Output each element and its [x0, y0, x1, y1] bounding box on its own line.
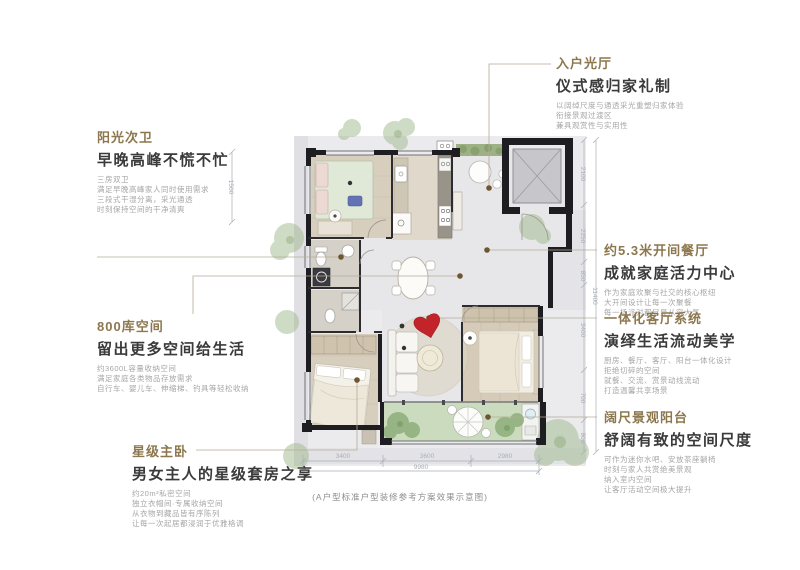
annotation-line: 以阔绰尺度与通透采光重塑归家体验 [556, 101, 684, 111]
annotation-subtitle: 仪式感归家礼制 [556, 75, 684, 96]
annotation-line: 时刻与家人共赏绝美景观 [604, 465, 753, 475]
blue-throw [348, 196, 362, 206]
dim-bottom-total: 9980 [414, 464, 429, 471]
wardrobe [464, 308, 538, 322]
annotation-sun-bathroom: 阳光次卫 早晚高峰不慌不忙 三房双卫 满足早晚高峰家人同时使用需求 三段式干湿分… [97, 127, 229, 215]
dim-bottom-3: 2980 [498, 453, 513, 460]
annotation-line: 纳入室内空间 [604, 475, 753, 485]
annotation-line: 衔接景观过渡区 [556, 111, 684, 121]
annotation-subtitle: 成就家庭活力中心 [604, 262, 736, 283]
annotation-entry-hall: 入户光厅 仪式感归家礼制 以阔绰尺度与通透采光重塑归家体验 衔接景观过渡区 兼具… [556, 53, 684, 131]
annotation-storage: 800库空间 留出更多空间给生活 约3600L容量收纳空间 满足家庭各类物品存放… [97, 316, 249, 394]
annotation-line: 自行车、婴儿车、伸缩梯、钓具等轻松收纳 [97, 384, 249, 394]
basin [342, 245, 354, 257]
dim-bottom-1: 3400 [336, 453, 351, 460]
annotation-line: 让每一次起居都浸润于优雅格调 [132, 519, 314, 529]
floor-dining [360, 238, 548, 310]
annotation-lines: 三房双卫 满足早晚高峰家人同时使用需求 三段式干湿分离，采光通透 时刻保持空间的… [97, 175, 229, 215]
annotation-line: 三段式干湿分离，采光通透 [97, 195, 229, 205]
annotation-master-bedroom: 星级主卧 男女主人的星级套房之享 约20m²私密空间 独立衣帽间·专属收纳空间 … [132, 441, 314, 529]
toilet [316, 252, 326, 266]
dim-right-2: 2250 [579, 229, 586, 244]
annotation-line: 拒绝切碎的空间 [604, 366, 736, 376]
annotation-line: 就餐、交流、赏景动线流动 [604, 376, 736, 386]
annotation-title: 阔尺景观阳台 [604, 407, 753, 426]
washer [313, 268, 330, 286]
annotation-lines: 厨房、餐厅、客厅、阳台一体化设计 拒绝切碎的空间 就餐、交流、赏景动线流动 打造… [604, 356, 736, 396]
annotation-subtitle: 演绎生活流动美学 [604, 330, 736, 351]
annotation-line: 满足早晚高峰家人同时使用需求 [97, 185, 229, 195]
dim-right-1: 2100 [579, 167, 586, 182]
annotation-title: 入户光厅 [556, 53, 684, 72]
annotation-lines: 可作为迷你水吧、安放茶座躺椅 时刻与家人共赏绝美景观 纳入室内空间 让客厅活动空… [604, 455, 753, 495]
dim-right-4: 3400 [579, 323, 586, 338]
annotation-subtitle: 男女主人的星级套房之享 [132, 463, 314, 484]
walk-in-closet [311, 336, 376, 354]
annotation-line: 打造温馨共享场景 [604, 386, 736, 396]
dim-right-total: 11400 [591, 287, 598, 305]
annotation-line: 兼具观赏性与实用性 [556, 121, 684, 131]
annotation-dining: 约5.3米开间餐厅 成就家庭活力中心 作为家庭欢聚与社交的核心枢纽 大开间设计让… [604, 240, 736, 318]
annotation-line: 时刻保持空间的干净清爽 [97, 205, 229, 215]
coffee-table [417, 345, 443, 371]
annotation-lines: 约3600L容量收纳空间 满足家庭各类物品存放需求 自行车、婴儿车、伸缩梯、钓具… [97, 364, 249, 394]
annotation-line: 可作为迷你水吧、安放茶座躺椅 [604, 455, 753, 465]
annotation-line: 大开间设计让每一次聚餐 [604, 298, 736, 308]
desk [318, 221, 352, 235]
annotation-subtitle: 留出更多空间给生活 [97, 338, 249, 359]
plan-caption: (A户型标准户型装修参考方案效果示意图) [0, 491, 800, 503]
dim-bottom-2: 3600 [420, 453, 435, 460]
annotation-title: 800库空间 [97, 316, 249, 335]
annotation-line: 约3600L容量收纳空间 [97, 364, 249, 374]
annotation-title: 阳光次卫 [97, 127, 229, 146]
annotation-line: 从衣物到藏品皆有序陈列 [132, 509, 314, 519]
annotation-title: 一体化客厅系统 [604, 308, 736, 327]
annotation-subtitle: 舒阔有致的空间尺度 [604, 429, 753, 450]
dim-right-3: 850 [579, 271, 586, 282]
annotation-line: 厨房、餐厅、客厅、阳台一体化设计 [604, 356, 736, 366]
island [392, 213, 411, 234]
annotation-line: 满足家庭各类物品存放需求 [97, 374, 249, 384]
annotation-line: 三房双卫 [97, 175, 229, 185]
annotation-balcony: 阔尺景观阳台 舒阔有致的空间尺度 可作为迷你水吧、安放茶座躺椅 时刻与家人共赏绝… [604, 407, 753, 495]
annotation-living: 一体化客厅系统 演绎生活流动美学 厨房、餐厅、客厅、阳台一体化设计 拒绝切碎的空… [604, 308, 736, 396]
annotation-title: 星级主卧 [132, 441, 314, 460]
annotation-lines: 以阔绰尺度与通透采光重塑归家体验 衔接景观过渡区 兼具观赏性与实用性 [556, 101, 684, 131]
annotation-subtitle: 早晚高峰不慌不忙 [97, 149, 229, 170]
dim-right-5: 700 [579, 393, 586, 404]
dim-right-6: 800 [579, 433, 586, 444]
stove [439, 206, 451, 226]
annotation-line: 作为家庭欢聚与社交的核心枢纽 [604, 288, 736, 298]
elevator-shaft [513, 149, 561, 203]
annotation-title: 约5.3米开间餐厅 [604, 240, 736, 259]
